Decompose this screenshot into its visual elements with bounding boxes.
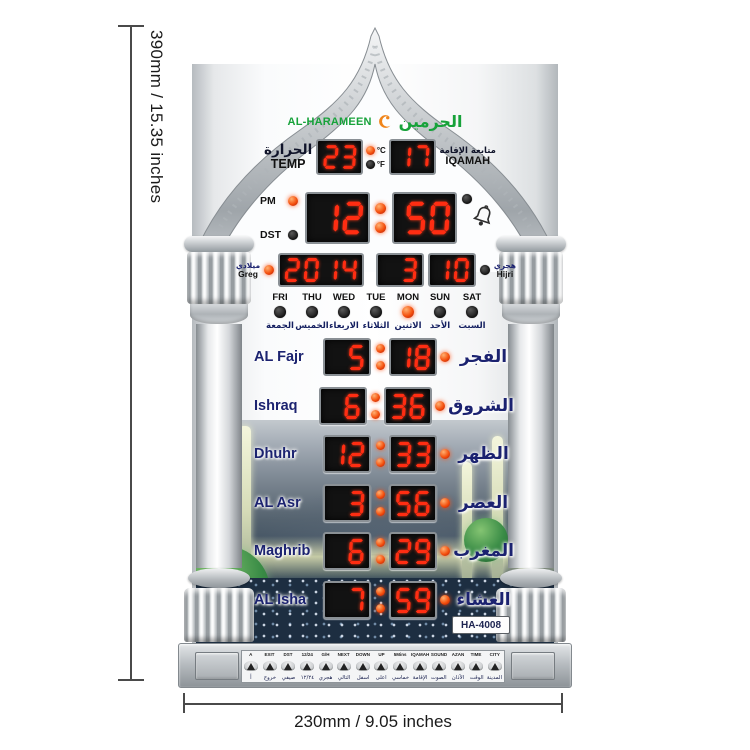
fajr-hour-display: [323, 338, 371, 376]
weekday-thu: THUالخميس: [296, 292, 328, 331]
prayer-indicator: [435, 401, 445, 411]
temp-label: الحرارة TEMP: [264, 143, 312, 170]
pm-label: PM: [260, 195, 284, 207]
ishraq-hour-display: [319, 387, 367, 425]
height-dimension-cap-bottom: [118, 679, 144, 681]
width-dimension-tick-left: [183, 693, 185, 713]
pm-indicator: [288, 196, 298, 206]
key-sound[interactable]: SOUNDالصوت: [430, 651, 449, 682]
day-indicator-active: [402, 306, 414, 318]
month-display: [376, 253, 424, 287]
temp-display: [316, 139, 363, 175]
prayer-row-isha: AL Isha العشاء: [254, 581, 514, 619]
colon: [370, 393, 381, 419]
prayer-indicator: [440, 498, 450, 508]
height-dimension-cap-top: [118, 25, 144, 27]
prayer-indicator: [440, 546, 450, 556]
temp-units: °C °F: [366, 146, 386, 169]
key-next[interactable]: NEXTالتالي: [335, 651, 354, 682]
gregorian-indicator: [264, 265, 274, 275]
weekday-sat: SATالسبت: [456, 292, 488, 331]
weekday-tue: TUEالثلاثاء: [360, 292, 392, 331]
dhuhr-minute-display: [389, 435, 437, 473]
alarm-indicator: [462, 194, 472, 204]
asr-hour-display: [323, 484, 371, 522]
key-gh[interactable]: G/Hهجري: [316, 651, 335, 682]
key-panel: Aأ EXITخروج DSTصيفي 12/24١٢/٢٤ G/Hهجري N…: [241, 650, 505, 683]
day-indicator: [370, 306, 382, 318]
key-up[interactable]: UPاعلى: [372, 651, 391, 682]
clock-colon: [375, 203, 386, 233]
prayer-row-maghrib: Maghrib المغرب: [254, 532, 514, 570]
dhuhr-hour-display: [323, 435, 371, 473]
colon: [374, 344, 386, 370]
ishraq-minute-display: [384, 387, 432, 425]
hijri-label: هجري Hijri: [494, 262, 516, 278]
height-dimension-label: 390mm / 15.35 inches: [146, 30, 166, 680]
isha-hour-display: [323, 581, 371, 619]
key-azan[interactable]: AZANالآذان: [448, 651, 467, 682]
day-indicator: [466, 306, 478, 318]
strip-end-button-left[interactable]: [195, 652, 239, 680]
prayer-indicator: [440, 449, 450, 459]
day-indicator: [274, 306, 286, 318]
height-dimension-line: [130, 26, 132, 680]
model-badge: HA-4008: [452, 616, 510, 634]
key-time[interactable]: TIMEالوقت: [467, 651, 486, 682]
product-photo: 390mm / 15.35 inches 230mm / 9.05 inches: [0, 0, 750, 750]
dst-indicator: [288, 230, 298, 240]
fajr-minute-display: [389, 338, 437, 376]
azan-clock: AL-HARAMEEN الحرمين الحرارة TEMP °C: [178, 24, 572, 688]
weekday-sun: SUNالأحد: [424, 292, 456, 331]
brand-name-arabic: الحرمين: [399, 112, 463, 131]
celsius-indicator: [366, 146, 375, 155]
prayer-indicator: [440, 595, 450, 605]
day-indicator: [306, 306, 318, 318]
colon: [374, 587, 386, 613]
isha-minute-display: [389, 581, 437, 619]
bell-icon: [466, 201, 499, 234]
temp-iqamah-row: الحرارة TEMP °C °F متابعة الإقامة IQAMAH: [264, 136, 496, 178]
key-city[interactable]: CITYالمدينة: [486, 651, 505, 682]
day-indicator: [338, 306, 350, 318]
colon: [374, 538, 386, 564]
maghrib-minute-display: [389, 532, 437, 570]
iqamah-display: [389, 139, 436, 175]
prayer-row-ishraq: Ishraq الشروق: [254, 387, 514, 425]
prayer-row-fajr: AL Fajr الفجر: [254, 338, 514, 376]
width-dimension-tick-right: [561, 693, 563, 713]
iqamah-label: متابعة الإقامة IQAMAH: [440, 147, 496, 167]
key-exit[interactable]: EXITخروج: [261, 651, 280, 682]
hour-display: [305, 192, 370, 244]
key-1224[interactable]: 12/24١٢/٢٤: [298, 651, 317, 682]
crescent-icon: [378, 114, 393, 129]
brand-logo: AL-HARAMEEN الحرمين: [178, 112, 572, 131]
weekday-row: FRIالجمعة THUالخميس WEDالاربعاء TUEالثلا…: [264, 292, 488, 331]
button-strip: Aأ EXITخروج DSTصيفي 12/24١٢/٢٤ G/Hهجري N…: [178, 643, 572, 688]
gregorian-label: ميلادي Greg: [236, 262, 260, 278]
prayer-row-asr: AL Asr العصر: [254, 484, 514, 522]
weekday-fri: FRIالجمعة: [264, 292, 296, 331]
minute-display: [392, 192, 457, 244]
asr-minute-display: [389, 484, 437, 522]
maghrib-hour-display: [323, 532, 371, 570]
prayer-row-dhuhr: Dhuhr الظهر: [254, 435, 514, 473]
day-indicator: [434, 306, 446, 318]
year-display: [278, 253, 364, 287]
key-iqamah[interactable]: IQAMAHالإقامة: [410, 651, 430, 682]
weekday-wed: WEDالاربعاء: [328, 292, 360, 331]
dst-label: DST: [260, 229, 284, 241]
time-row: PM DST: [260, 190, 494, 246]
day-display: [428, 253, 476, 287]
key-5mins[interactable]: 5Minsخماسي: [391, 651, 410, 682]
fahrenheit-label: °F: [377, 160, 385, 169]
colon: [374, 441, 386, 467]
key-down[interactable]: DOWNاسفل: [353, 651, 372, 682]
colon: [374, 490, 386, 516]
weekday-mon: MONالاثنين: [392, 292, 424, 331]
width-dimension-label: 230mm / 9.05 inches: [183, 712, 563, 732]
key-a[interactable]: Aأ: [242, 651, 261, 682]
key-dst[interactable]: DSTصيفي: [279, 651, 298, 682]
hijri-indicator: [480, 265, 490, 275]
date-row: ميلادي Greg هجري Hijri: [236, 252, 516, 288]
celsius-label: °C: [377, 146, 386, 155]
width-dimension-line: [183, 703, 563, 705]
brand-name-latin: AL-HARAMEEN: [288, 116, 372, 128]
strip-end-button-right[interactable]: [511, 652, 555, 680]
prayer-indicator: [440, 352, 450, 362]
fahrenheit-indicator: [366, 160, 375, 169]
